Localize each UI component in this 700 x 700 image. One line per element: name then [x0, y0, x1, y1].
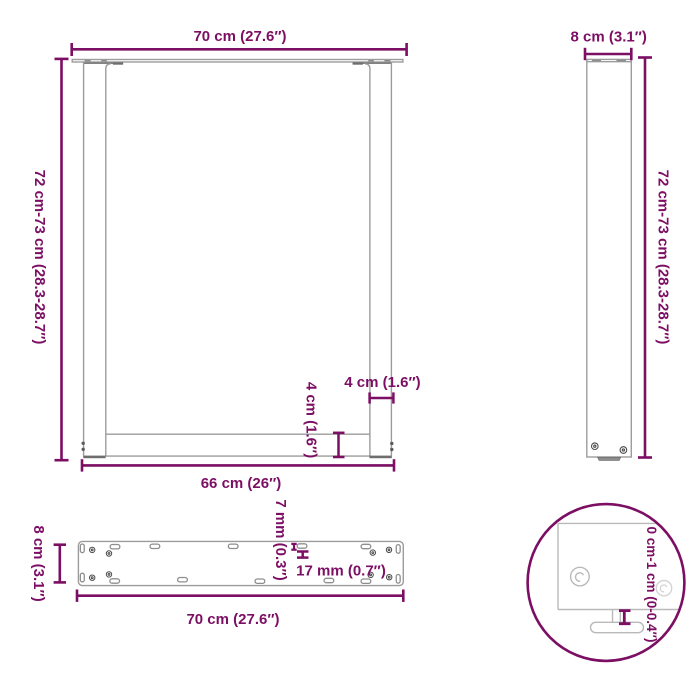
svg-text:8 cm (3.1″): 8 cm (3.1″): [571, 29, 647, 46]
svg-text:17 mm (0.7″): 17 mm (0.7″): [296, 563, 386, 580]
svg-text:70 cm (27.6″): 70 cm (27.6″): [193, 28, 286, 45]
svg-text:70 cm (27.6″): 70 cm (27.6″): [186, 611, 279, 628]
svg-text:4 cm (1.6″): 4 cm (1.6″): [303, 382, 320, 458]
svg-text:0 cm-1 cm (0-0.4″): 0 cm-1 cm (0-0.4″): [644, 526, 659, 642]
svg-text:8 cm (3.1″): 8 cm (3.1″): [30, 525, 47, 601]
svg-text:4 cm (1.6″): 4 cm (1.6″): [344, 374, 420, 391]
svg-text:72 cm-73 cm (28.3-28.7″): 72 cm-73 cm (28.3-28.7″): [655, 170, 672, 345]
svg-text:7 mm (0.3″): 7 mm (0.3″): [272, 499, 289, 580]
svg-text:66 cm (26″): 66 cm (26″): [201, 475, 282, 492]
svg-text:72 cm-73 cm (28.3-28.7″): 72 cm-73 cm (28.3-28.7″): [31, 170, 48, 345]
